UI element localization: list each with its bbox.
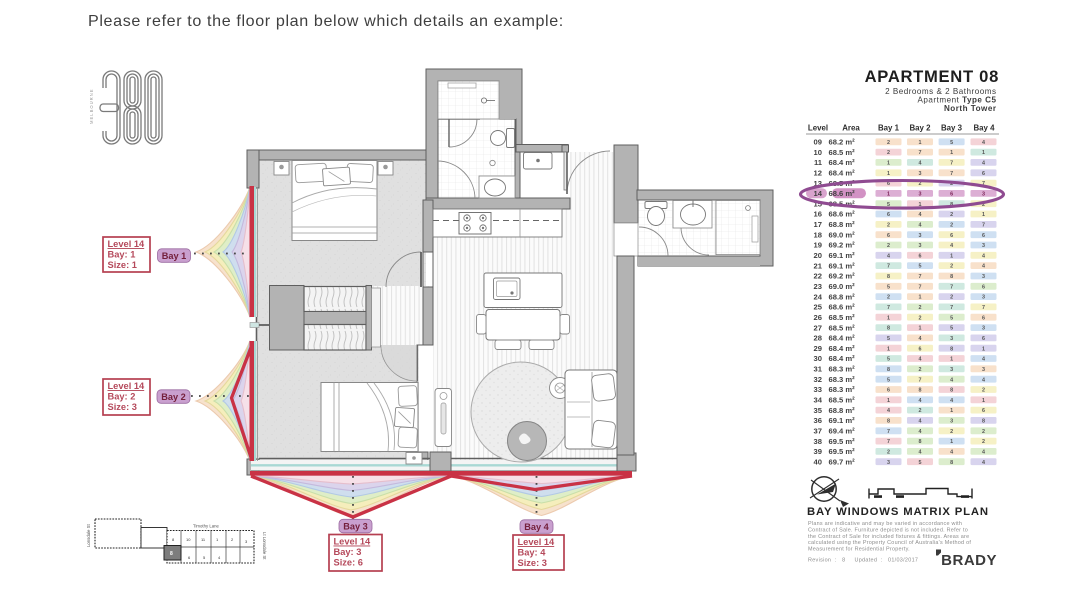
svg-text:7: 7 [887,429,890,435]
svg-text:68.3 m²: 68.3 m² [829,365,856,374]
svg-text:68.5 m²: 68.5 m² [829,396,856,405]
svg-text:7: 7 [887,264,890,270]
svg-text:calculated using the Proper: calculated using the Property Council of… [808,540,971,546]
svg-text:1: 1 [919,295,922,301]
svg-text:Bay: 3: Bay: 3 [334,547,362,557]
svg-text:1: 1 [887,346,890,352]
svg-text:1: 1 [950,439,953,445]
svg-text:4: 4 [982,450,985,456]
svg-text:3: 3 [887,460,890,466]
svg-text:4: 4 [982,460,985,466]
svg-text:68.2 m²: 68.2 m² [829,138,856,147]
svg-text:37: 37 [814,427,822,436]
svg-text:68.8 m²: 68.8 m² [829,220,856,229]
svg-text:2: 2 [887,150,890,156]
svg-text:7: 7 [950,305,953,311]
svg-text:69.5 m²: 69.5 m² [829,437,856,446]
svg-text:5: 5 [950,140,953,146]
svg-text:BRADY: BRADY [941,552,997,569]
svg-text:Revision : 8 Updated :: Revision : 8 Updated : 01/03/2017 [808,558,918,564]
svg-text:4: 4 [950,243,953,249]
svg-text:5: 5 [887,336,890,342]
svg-text:Bay: 2: Bay: 2 [108,392,136,402]
svg-text:3: 3 [982,243,985,249]
svg-text:4: 4 [982,357,985,363]
svg-text:Bay 3: Bay 3 [941,124,963,133]
svg-text:Bay 4: Bay 4 [524,522,549,532]
svg-text:Bay 1: Bay 1 [878,124,900,133]
svg-text:17: 17 [814,220,822,229]
svg-text:Bay: 1: Bay: 1 [108,250,136,260]
svg-text:4: 4 [950,450,953,456]
svg-text:5: 5 [919,460,922,466]
svg-text:69.0 m²: 69.0 m² [829,230,856,239]
svg-text:4: 4 [982,140,985,146]
svg-text:8: 8 [170,551,173,557]
svg-text:68.4 m²: 68.4 m² [829,344,856,353]
svg-text:6: 6 [919,253,922,259]
svg-text:Level 14: Level 14 [518,537,556,547]
svg-text:Size: 3: Size: 3 [108,402,137,412]
svg-text:5: 5 [950,326,953,332]
svg-text:7: 7 [919,150,922,156]
svg-text:1: 1 [887,161,890,167]
svg-text:6: 6 [887,212,890,218]
svg-text:40: 40 [814,457,822,466]
svg-text:4: 4 [919,357,922,363]
svg-text:5: 5 [887,284,890,290]
svg-text:2: 2 [950,223,953,229]
svg-text:Lonsdale St: Lonsdale St [86,523,91,547]
svg-text:1: 1 [982,212,985,218]
svg-text:4: 4 [919,450,922,456]
svg-text:6: 6 [950,233,953,239]
svg-text:1: 1 [919,140,922,146]
svg-text:6: 6 [982,408,985,414]
svg-text:Level: Level [808,124,828,133]
svg-text:2: 2 [887,243,890,249]
svg-text:Level 14: Level 14 [334,537,372,547]
svg-text:4: 4 [950,377,953,383]
svg-text:68.6 m²: 68.6 m² [829,189,856,198]
svg-text:7: 7 [919,377,922,383]
svg-text:4: 4 [887,253,890,259]
svg-text:Lt Lonsdale St: Lt Lonsdale St [262,532,267,560]
svg-text:Level 14: Level 14 [108,381,146,391]
svg-text:Bay 2: Bay 2 [161,392,186,402]
svg-text:30: 30 [814,354,822,363]
svg-text:34: 34 [814,396,823,405]
svg-text:4: 4 [919,212,922,218]
svg-text:1: 1 [982,398,985,404]
svg-text:4: 4 [919,161,922,167]
svg-text:2: 2 [982,388,985,394]
svg-text:39: 39 [814,447,822,456]
svg-text:68.5 m²: 68.5 m² [829,148,856,157]
svg-text:8: 8 [950,460,953,466]
svg-text:Measurement for Residential: Measurement for Residential Property. [808,547,910,553]
svg-text:1: 1 [950,150,953,156]
svg-text:18: 18 [814,230,822,239]
svg-text:7: 7 [950,171,953,177]
svg-text:22: 22 [814,272,822,281]
svg-text:3: 3 [919,243,922,249]
svg-text:Size: 6: Size: 6 [334,558,363,568]
svg-text:69.5 m²: 69.5 m² [829,447,856,456]
svg-text:68.8 m²: 68.8 m² [829,292,856,301]
svg-text:69.7 m²: 69.7 m² [829,457,856,466]
svg-text:35: 35 [814,406,823,415]
svg-text:10: 10 [186,537,191,542]
svg-text:31: 31 [814,365,823,374]
svg-text:68.3 m²: 68.3 m² [829,385,856,394]
svg-text:28: 28 [814,334,822,343]
svg-text:6: 6 [982,336,985,342]
svg-text:6: 6 [982,233,985,239]
svg-text:3: 3 [919,171,922,177]
svg-text:the Contract of Sale for: the Contract of Sale for included fixtur… [808,534,969,540]
svg-text:8: 8 [950,274,953,280]
svg-text:29: 29 [814,344,822,353]
svg-text:Please refer to the floor plan: Please refer to the floor plan below whi… [88,12,564,30]
svg-text:8: 8 [887,326,890,332]
svg-text:69.1 m²: 69.1 m² [829,251,856,260]
svg-text:3: 3 [919,233,922,239]
svg-text:2: 2 [887,450,890,456]
svg-text:3: 3 [982,367,985,373]
svg-text:2: 2 [982,439,985,445]
svg-text:69.2 m²: 69.2 m² [829,241,856,250]
svg-text:68.8 m²: 68.8 m² [829,406,856,415]
svg-text:4: 4 [919,336,922,342]
svg-text:68.4 m²: 68.4 m² [829,158,856,167]
svg-text:26: 26 [814,313,822,322]
svg-text:19: 19 [814,241,822,250]
svg-text:Bay 4: Bay 4 [973,124,995,133]
svg-text:3: 3 [982,274,985,280]
svg-text:3: 3 [982,192,985,198]
svg-text:2: 2 [950,212,953,218]
svg-text:2: 2 [919,305,922,311]
svg-text:68.5 m²: 68.5 m² [829,313,856,322]
svg-text:8: 8 [887,367,890,373]
svg-text:69.2 m²: 69.2 m² [829,272,856,281]
svg-text:1: 1 [887,192,890,198]
svg-text:68.6 m²: 68.6 m² [829,303,856,312]
svg-text:5: 5 [887,357,890,363]
svg-text:27: 27 [814,323,822,332]
svg-text:2: 2 [887,295,890,301]
svg-text:14: 14 [814,189,823,198]
svg-text:4: 4 [919,223,922,229]
svg-text:8: 8 [950,346,953,352]
svg-text:21: 21 [814,261,823,270]
svg-text:1: 1 [950,357,953,363]
svg-text:8: 8 [982,419,985,425]
svg-text:7: 7 [950,284,953,290]
svg-text:24: 24 [814,292,823,301]
svg-text:1: 1 [950,253,953,259]
svg-text:APARTMENT 08: APARTMENT 08 [865,67,999,86]
svg-text:36: 36 [814,416,822,425]
svg-text:7: 7 [919,274,922,280]
svg-text:68.5 m²: 68.5 m² [829,323,856,332]
svg-text:1: 1 [887,315,890,321]
svg-text:Contract of Sale. Furniture: Contract of Sale. Furniture depicted is … [808,527,968,533]
svg-text:2: 2 [982,429,985,435]
svg-text:2: 2 [887,140,890,146]
svg-text:5: 5 [887,377,890,383]
svg-text:1: 1 [887,171,890,177]
svg-text:6: 6 [982,315,985,321]
svg-text:69.0 m²: 69.0 m² [829,282,856,291]
svg-text:10: 10 [814,148,822,157]
svg-text:68.4 m²: 68.4 m² [829,354,856,363]
svg-text:33: 33 [814,385,822,394]
svg-text:3: 3 [950,367,953,373]
svg-text:68.6 m²: 68.6 m² [829,210,856,219]
svg-text:Bay 1: Bay 1 [162,251,187,261]
svg-text:68.4 m²: 68.4 m² [829,169,856,178]
svg-text:3: 3 [982,295,985,301]
svg-text:3: 3 [982,326,985,332]
svg-text:North Tower: North Tower [944,104,997,113]
svg-text:6: 6 [919,346,922,352]
svg-text:2: 2 [919,408,922,414]
svg-text:4: 4 [950,398,953,404]
svg-text:Bay 3: Bay 3 [343,521,368,531]
svg-text:3: 3 [950,336,953,342]
svg-text:Size: 3: Size: 3 [518,558,547,568]
svg-text:1: 1 [950,408,953,414]
svg-text:Level 14: Level 14 [108,239,146,249]
svg-text:1: 1 [919,326,922,332]
svg-text:Bay 2: Bay 2 [909,124,931,133]
svg-text:7: 7 [887,439,890,445]
svg-text:Timothy Lane: Timothy Lane [193,524,219,529]
svg-text:1: 1 [982,346,985,352]
svg-text:2: 2 [950,429,953,435]
svg-text:69.4 m²: 69.4 m² [829,427,856,436]
svg-text:8: 8 [887,274,890,280]
svg-text:4: 4 [982,253,985,259]
svg-text:2: 2 [950,264,953,270]
svg-text:BAY WINDOWS MATRIX PLAN: BAY WINDOWS MATRIX PLAN [807,506,989,518]
svg-text:7: 7 [982,305,985,311]
svg-text:6: 6 [887,388,890,394]
svg-text:4: 4 [982,377,985,383]
svg-text:4: 4 [919,398,922,404]
svg-text:20: 20 [814,251,822,260]
svg-text:6: 6 [982,284,985,290]
svg-text:Size: 1: Size: 1 [108,260,137,270]
svg-text:3: 3 [950,419,953,425]
svg-text:4: 4 [982,264,985,270]
svg-text:09: 09 [814,138,822,147]
svg-text:6: 6 [887,233,890,239]
svg-text:2: 2 [919,367,922,373]
svg-text:4: 4 [919,419,922,425]
svg-text:Bay: 4: Bay: 4 [518,548,547,558]
svg-text:69.1 m²: 69.1 m² [829,261,856,270]
svg-text:2: 2 [887,223,890,229]
svg-text:2: 2 [950,295,953,301]
svg-text:69.1 m²: 69.1 m² [829,416,856,425]
svg-text:32: 32 [814,375,822,384]
svg-text:4: 4 [982,161,985,167]
svg-text:4: 4 [887,408,890,414]
svg-text:1: 1 [887,398,890,404]
svg-text:23: 23 [814,282,822,291]
svg-text:5: 5 [950,315,953,321]
svg-text:7: 7 [950,161,953,167]
svg-text:Area: Area [842,124,860,133]
svg-text:11: 11 [814,158,823,167]
svg-text:1: 1 [982,150,985,156]
svg-text:8: 8 [919,439,922,445]
svg-text:Plans are indicative and m: Plans are indicative and may be varied i… [808,521,962,527]
svg-text:2: 2 [919,315,922,321]
svg-text:MELBOURNE: MELBOURNE [89,88,94,124]
svg-text:6: 6 [982,171,985,177]
svg-text:12: 12 [814,169,822,178]
svg-text:38: 38 [814,437,822,446]
svg-text:16: 16 [814,210,822,219]
svg-text:6: 6 [950,192,953,198]
svg-text:68.3 m²: 68.3 m² [829,375,856,384]
svg-text:7: 7 [919,284,922,290]
svg-text:5: 5 [919,264,922,270]
svg-text:4: 4 [919,429,922,435]
svg-text:7: 7 [887,305,890,311]
svg-text:8: 8 [919,388,922,394]
svg-text:8: 8 [950,388,953,394]
svg-text:68.4 m²: 68.4 m² [829,334,856,343]
svg-text:3: 3 [919,192,922,198]
svg-text:25: 25 [814,303,823,312]
svg-text:7: 7 [982,223,985,229]
svg-text:8: 8 [887,419,890,425]
